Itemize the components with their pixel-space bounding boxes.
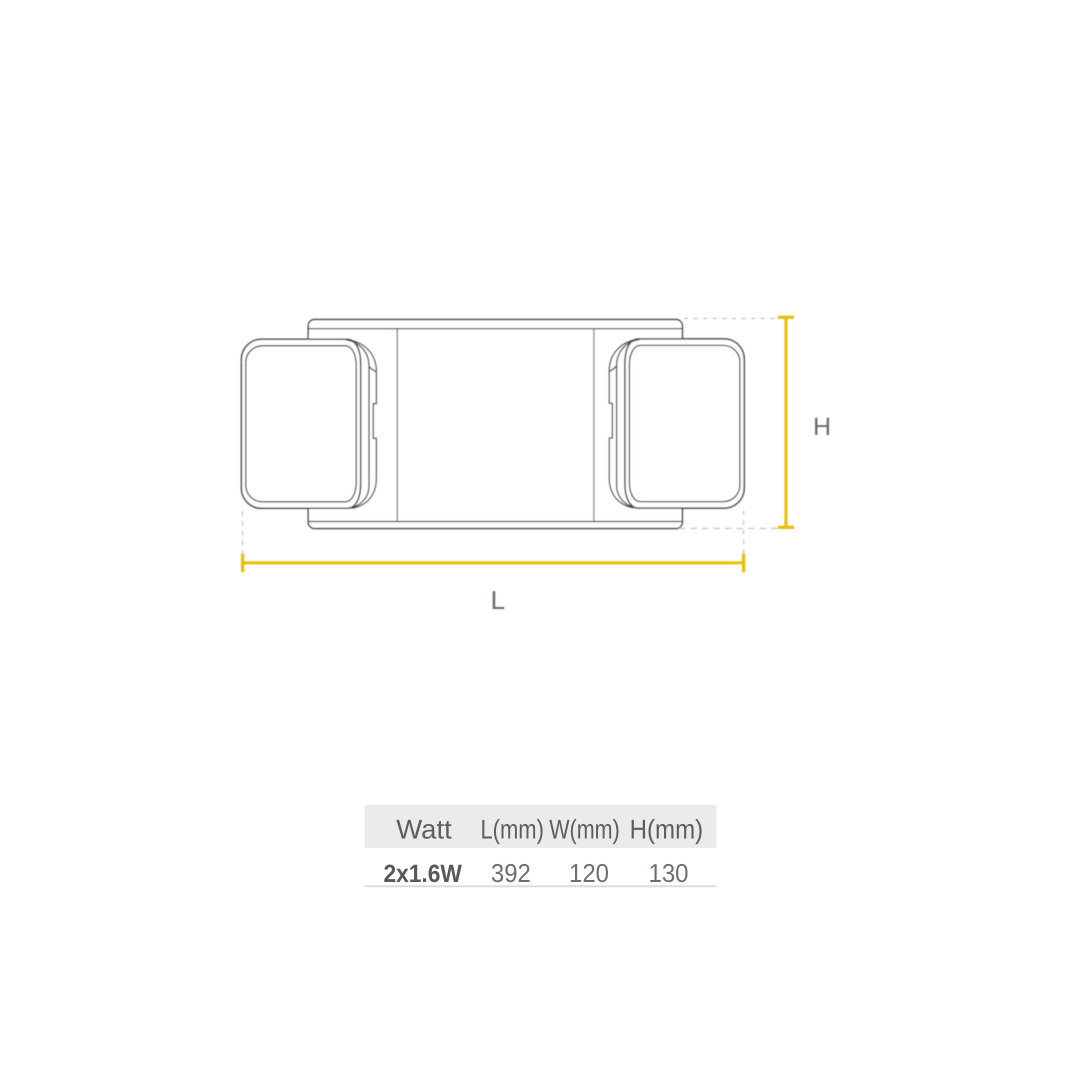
svg-text:120: 120 [569, 858, 609, 888]
svg-text:Watt: Watt [396, 814, 452, 844]
svg-text:130: 130 [649, 858, 689, 888]
svg-text:2x1.6W: 2x1.6W [383, 860, 462, 888]
svg-text:L(mm): L(mm) [480, 814, 544, 844]
svg-text:W(mm): W(mm) [549, 814, 620, 844]
svg-text:L: L [491, 585, 505, 615]
svg-text:H(mm): H(mm) [630, 814, 704, 844]
svg-text:H: H [813, 413, 831, 441]
svg-text:392: 392 [491, 858, 531, 888]
